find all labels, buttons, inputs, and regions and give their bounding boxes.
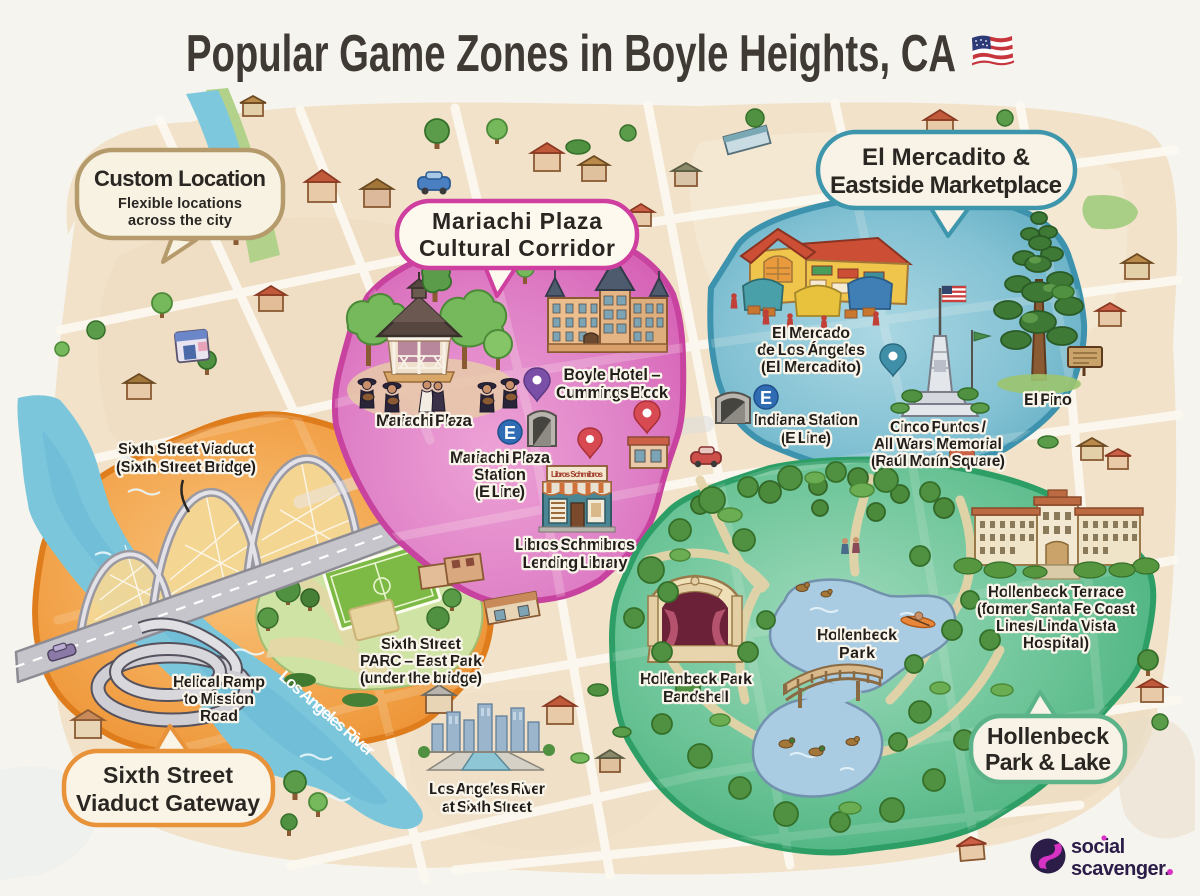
svg-text:Viaduct Gateway: Viaduct Gateway [76, 790, 260, 816]
svg-text:(El Mercadito): (El Mercadito) [761, 359, 861, 376]
svg-text:Custom Location: Custom Location [94, 166, 266, 191]
svg-text:Hollenbeck Park: Hollenbeck Park [640, 671, 752, 688]
svg-text:El Mercadito &: El Mercadito & [862, 144, 1030, 171]
svg-text:Sixth Street: Sixth Street [103, 762, 233, 788]
svg-text:Station: Station [474, 466, 526, 484]
svg-text:to Mission: to Mission [184, 691, 254, 708]
svg-text:Cinco Puntos /: Cinco Puntos / [890, 419, 987, 436]
svg-text:Mariachi Plaza: Mariachi Plaza [432, 208, 602, 234]
svg-text:(Raúl Morín Square): (Raúl Morín Square) [871, 453, 1005, 470]
svg-text:across the city: across the city [128, 213, 232, 229]
svg-text:Mariachi Plaza: Mariachi Plaza [450, 449, 551, 467]
svg-text:El Pino: El Pino [1024, 391, 1072, 409]
svg-text:Sixth Street Viaduct: Sixth Street Viaduct [118, 441, 255, 458]
svg-text:Los Angeles River: Los Angeles River [429, 781, 545, 798]
svg-text:Helical Ramp: Helical Ramp [173, 674, 265, 691]
svg-text:social: social [1071, 836, 1125, 858]
svg-text:Indiana Station: Indiana Station [754, 412, 858, 429]
svg-text:Eastside Marketplace: Eastside Marketplace [830, 172, 1062, 199]
svg-text:de Los Ángeles: de Los Ángeles [757, 340, 865, 359]
svg-text:scavenger.: scavenger. [1071, 858, 1169, 880]
svg-text:at Sixth Street: at Sixth Street [442, 799, 533, 816]
svg-text:Park: Park [839, 645, 875, 662]
svg-text:Libros Schmibros: Libros Schmibros [515, 536, 635, 554]
svg-text:Hollenbeck: Hollenbeck [987, 723, 1109, 749]
svg-text:Hollenbeck: Hollenbeck [817, 627, 897, 644]
svg-text:Road: Road [200, 708, 238, 725]
svg-text:Popular Game Zones in Boyle He: Popular Game Zones in Boyle Heights, CA [186, 25, 956, 83]
svg-text:Boyle Hotel –: Boyle Hotel – [564, 366, 661, 384]
svg-text:(under the bridge): (under the bridge) [360, 670, 482, 687]
svg-text:El Mercado: El Mercado [772, 325, 850, 342]
svg-text:(E Line): (E Line) [475, 483, 525, 501]
svg-text:Hollenbeck Terrace: Hollenbeck Terrace [988, 584, 1124, 601]
svg-text:Bandshell: Bandshell [663, 689, 729, 706]
svg-text:Mariachi Plaza: Mariachi Plaza [376, 411, 473, 430]
svg-text:Flexible locations: Flexible locations [118, 196, 242, 212]
svg-text:All Wars Memorial: All Wars Memorial [874, 436, 1002, 453]
svg-text:(Sixth Street Bridge): (Sixth Street Bridge) [116, 459, 256, 476]
svg-text:(E Line): (E Line) [781, 430, 831, 447]
svg-text:PARC – East Park: PARC – East Park [360, 653, 482, 670]
svg-text:Park & Lake: Park & Lake [985, 749, 1111, 775]
svg-text:Hospital): Hospital) [1023, 635, 1089, 652]
svg-text:Lending Library: Lending Library [523, 554, 629, 572]
svg-text:Lines/Linda Vista: Lines/Linda Vista [996, 618, 1116, 635]
svg-text:Libros Schmibros: Libros Schmibros [551, 470, 604, 479]
svg-text:E: E [504, 423, 516, 443]
svg-text:E: E [760, 388, 772, 408]
svg-text:(former Santa Fe Coast: (former Santa Fe Coast [977, 601, 1135, 618]
svg-text:Sixth Street: Sixth Street [381, 636, 462, 653]
svg-text:Cultural Corridor: Cultural Corridor [419, 235, 615, 261]
svg-text:Cummings Block: Cummings Block [556, 384, 669, 402]
